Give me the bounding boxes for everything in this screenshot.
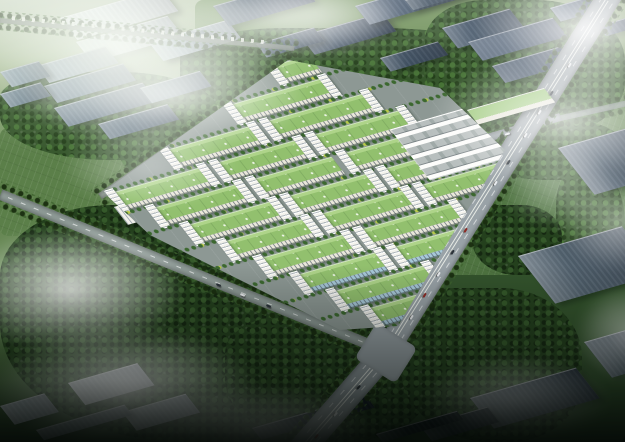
aerial-industrial-park-render (0, 0, 625, 442)
